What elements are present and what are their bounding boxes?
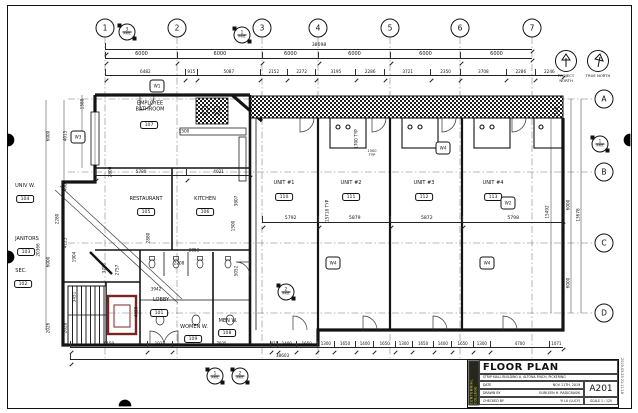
dim-bottom-detail: 6159 1922 7925 475 1400 1650 1300 1650 1… [70, 338, 563, 348]
dim: 6000 [46, 131, 51, 142]
room-tag-102: 102 [14, 280, 32, 288]
room-tag-101: 101 [150, 309, 168, 317]
grid-bubble-6: 6 [451, 19, 470, 38]
unit-label-1: UNIT #1 [274, 181, 295, 187]
window-tag-w3: W3 [71, 131, 86, 144]
true-north-icon [587, 50, 609, 72]
grid-bubble-2: 2 [168, 19, 187, 38]
room-label-sec: SEC. [15, 269, 26, 275]
dim: 3781 [102, 263, 107, 274]
dim: 15492 [545, 205, 550, 218]
section-marker: 1A401 [207, 368, 224, 385]
room-label-univ-w: UNIV W. [15, 184, 35, 190]
dim: 2186 [554, 107, 559, 118]
room-tag-105: 105 [137, 208, 155, 216]
window-tag-w2: W2 [501, 197, 516, 210]
dim: 6000 [566, 278, 571, 289]
room-label-men-w: MEN W. [219, 319, 238, 325]
room-label-kitchen: KITCHEN [194, 197, 216, 203]
room-label-janitors: JANITORS [15, 237, 39, 243]
dim-restaurant-row: 5780 4021 [95, 166, 250, 176]
grid-bubble-4: 4 [309, 19, 328, 38]
window-tag-w4b: W4 [326, 257, 341, 270]
grid-bubble-7: 7 [523, 19, 542, 38]
sheet-number: A201 [584, 381, 618, 397]
dim: 2853 [189, 248, 200, 253]
toilet-fixtures [149, 106, 234, 325]
window-tag-w4: W4 [436, 142, 451, 155]
dim: 1500 [179, 129, 190, 134]
dim: 6000 [46, 257, 51, 268]
room-label-restaurant: RESTAURANT [129, 197, 162, 203]
dim: 2208 [174, 261, 185, 266]
unit-label-2: UNIT #2 [341, 181, 362, 187]
room-label-employee-bathroom: EMPLOYEE BATHROOM [127, 101, 173, 113]
section-marker: 1A401 [592, 136, 609, 153]
unit-tag-113: 113 [484, 193, 502, 201]
title-block: CENTENNIAL COLLEGE FLOOR PLAN STRIP MALL… [467, 359, 619, 408]
drawing-title: FLOOR PLAN [479, 360, 618, 374]
room-tag-104: 104 [16, 195, 34, 203]
room-tag-109: 109 [184, 335, 202, 343]
grid-bubble-A: A [595, 90, 614, 109]
room-label-women-w: WOMEN W. [180, 325, 208, 331]
dim-units-row: 5792 5879 5872 5798 [262, 213, 563, 223]
section-marker: 2A401 [278, 284, 295, 301]
grid-bubble-C: C [595, 234, 614, 253]
dim: 2026 [46, 323, 51, 334]
room-tag-108: 108 [218, 329, 236, 337]
unit-label-3: UNIT #3 [414, 181, 435, 187]
room-tag-106: 106 [196, 208, 214, 216]
dim: 4005 [63, 181, 68, 192]
dim: 2028 [63, 323, 68, 334]
room-label-lobby: LOBBY [153, 298, 169, 304]
window-tag-w1: W1 [150, 80, 165, 93]
plot-stamp: 2019-03-23 21:11:18 [620, 358, 624, 406]
dim: 1580 [80, 99, 85, 110]
dim: 13678 [576, 208, 581, 221]
dim: 5052 [234, 266, 239, 277]
window-tag-w4c: W4 [480, 257, 495, 270]
floor-plan-sheet: 1 2 3 4 5 6 7 A B C D 38698 6000 6000 60… [0, 0, 638, 413]
dim-value: 38698 [312, 43, 327, 48]
dim: 6000 [566, 200, 571, 211]
unit-tag-111: 111 [342, 193, 360, 201]
dim-top-equal: 6000 6000 6000 6000 6000 6000 [105, 49, 532, 59]
unit-label-4: UNIT #4 [483, 181, 504, 187]
dim: 1500 [231, 221, 236, 232]
project-north: PROJECT NORTH [551, 50, 581, 83]
dim: 3807 [234, 196, 239, 207]
true-north: TRUE NORTH [583, 50, 613, 79]
section-marker: 1A401 [234, 27, 251, 44]
dim: 1500 TYP [365, 149, 379, 157]
room-tag-107: 107 [140, 121, 158, 129]
grid-bubble-1: 1 [96, 19, 115, 38]
diagonal-canopy-lines [55, 186, 182, 303]
dim: 15718 TYP [325, 200, 330, 222]
elevator [108, 296, 136, 334]
project-north-icon [555, 50, 577, 72]
dim: 4015 [63, 131, 68, 142]
school-logo: CENTENNIAL COLLEGE [468, 360, 479, 405]
dim: 2880 [146, 233, 151, 244]
dim: 1904 [72, 252, 77, 263]
dim: 2757 [115, 265, 120, 276]
dim: 3942 [151, 287, 162, 292]
grid-bubble-5: 5 [381, 19, 400, 38]
grid-bubble-B: B [595, 163, 614, 182]
dim: 3451 [72, 292, 77, 303]
dim: 4323 [134, 307, 139, 318]
section-marker: 2A401 [232, 368, 249, 385]
section-marker: 3A401 [119, 24, 136, 41]
grid-bubble-D: D [595, 304, 614, 323]
unit-tag-110: 110 [275, 193, 293, 201]
dim: 1700 TYP [354, 129, 359, 149]
dim: 2800 [108, 167, 113, 178]
sheet-scale: SCALE 1 : 125 [584, 397, 618, 405]
dim-top-detail: 6482 915 5087 2152 2272 3195 2286 3721 2… [105, 66, 563, 76]
dim: 4125 [63, 238, 68, 249]
grid-bubble-3: 3 [253, 19, 272, 38]
field-checked-by: CHECKED BYYI LU (LUCY) [479, 397, 584, 405]
room-tag-103: 103 [17, 248, 35, 256]
dim: 20366 [36, 243, 41, 256]
windows [91, 112, 99, 165]
unit-tag-112: 112 [415, 193, 433, 201]
dim: 2280 [55, 214, 60, 225]
